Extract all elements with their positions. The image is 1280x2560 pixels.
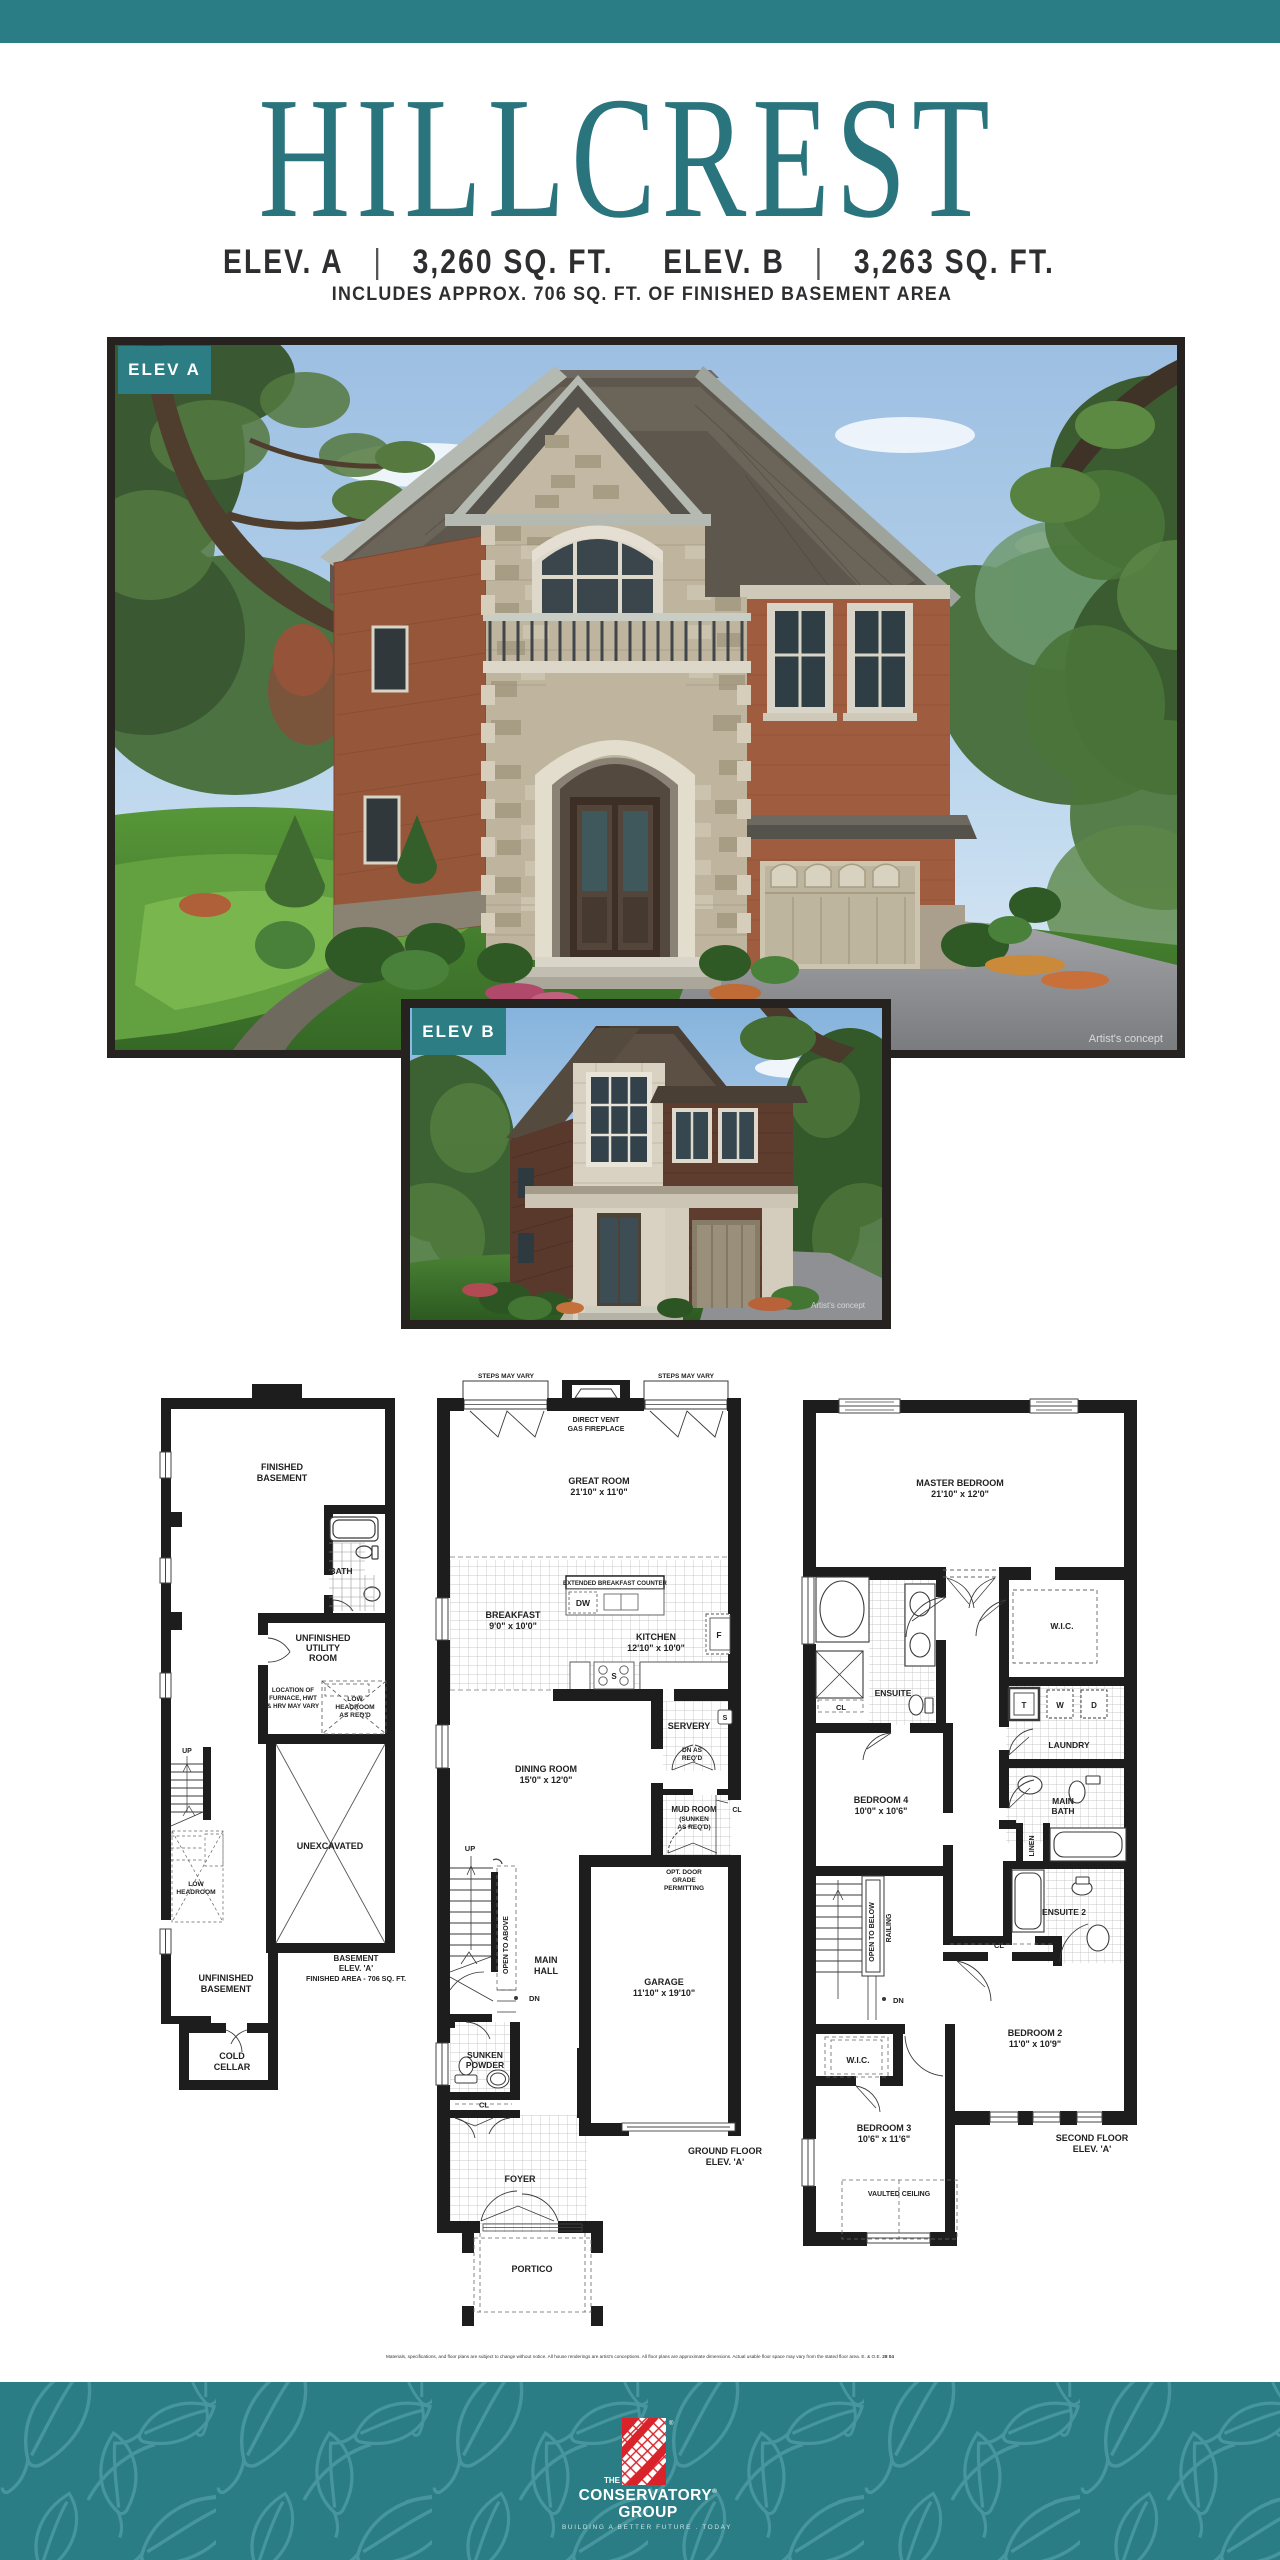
svg-text:MUD ROOM: MUD ROOM <box>671 1805 717 1814</box>
svg-text:POWDER: POWDER <box>466 2060 504 2070</box>
svg-text:UP: UP <box>465 1844 475 1853</box>
svg-text:UNFINISHED: UNFINISHED <box>198 1973 254 1983</box>
svg-text:LINEN: LINEN <box>1029 1836 1036 1857</box>
svg-text:BASEMENT: BASEMENT <box>201 1984 252 1994</box>
svg-text:CL: CL <box>994 1941 1004 1950</box>
svg-text:11'0" x 10'9": 11'0" x 10'9" <box>1009 2039 1061 2049</box>
svg-text:STEPS MAY VARY: STEPS MAY VARY <box>658 1373 715 1380</box>
svg-text:EXTENDED BREAKFAST COUNTER: EXTENDED BREAKFAST COUNTER <box>563 1580 668 1587</box>
svg-text:BATH: BATH <box>1052 1806 1075 1816</box>
svg-text:UP: UP <box>182 1748 192 1755</box>
svg-text:12'10" x 10'0": 12'10" x 10'0" <box>627 1643 685 1653</box>
svg-text:SERVERY: SERVERY <box>668 1721 711 1731</box>
svg-text:MASTER BEDROOM: MASTER BEDROOM <box>916 1478 1004 1488</box>
svg-text:VAULTED CEILING: VAULTED CEILING <box>868 2191 931 2198</box>
svg-text:SUNKEN: SUNKEN <box>467 2050 503 2060</box>
svg-text:OPEN TO BELOW: OPEN TO BELOW <box>869 1902 876 1962</box>
svg-text:UNEXCAVATED: UNEXCAVATED <box>297 1841 364 1851</box>
svg-text:(SUNKEN: (SUNKEN <box>679 1816 709 1823</box>
svg-text:BEDROOM 3: BEDROOM 3 <box>857 2123 912 2133</box>
svg-text:10'6" x 11'6": 10'6" x 11'6" <box>858 2134 910 2144</box>
svg-text:BASEMENT: BASEMENT <box>257 1473 308 1483</box>
svg-text:ENSUITE 2: ENSUITE 2 <box>1042 1907 1086 1917</box>
svg-text:PORTICO: PORTICO <box>511 2264 552 2274</box>
svg-text:BASEMENT: BASEMENT <box>334 1954 379 1963</box>
svg-text:DIRECT VENT: DIRECT VENT <box>573 1417 620 1424</box>
svg-text:LOCATION OF: LOCATION OF <box>272 1687 314 1694</box>
svg-text:GARAGE: GARAGE <box>644 1977 684 1987</box>
svg-text:MAIN: MAIN <box>535 1955 558 1965</box>
svg-text:S: S <box>611 1672 617 1681</box>
svg-text:COLD: COLD <box>219 2051 245 2061</box>
svg-text:®: ® <box>669 2420 674 2427</box>
svg-text:MAIN: MAIN <box>1052 1796 1074 1806</box>
svg-text:CL: CL <box>732 1807 742 1814</box>
svg-text:ELEV. 'A': ELEV. 'A' <box>339 1964 373 1973</box>
svg-text:DINING ROOM: DINING ROOM <box>515 1764 577 1774</box>
svg-text:FURNACE, HWT: FURNACE, HWT <box>269 1695 317 1702</box>
svg-text:D: D <box>1091 1701 1097 1710</box>
svg-text:LOW: LOW <box>188 1881 204 1888</box>
svg-text:T: T <box>1022 1701 1027 1710</box>
svg-text:DN AS: DN AS <box>682 1747 703 1754</box>
svg-text:KITCHEN: KITCHEN <box>636 1632 676 1642</box>
svg-text:BREAKFAST: BREAKFAST <box>485 1610 541 1620</box>
svg-text:FINISHED: FINISHED <box>261 1462 304 1472</box>
svg-text:REQ'D: REQ'D <box>682 1755 703 1762</box>
svg-text:SECOND FLOOR: SECOND FLOOR <box>1056 2133 1129 2143</box>
svg-text:Artist's concept: Artist's concept <box>1089 1033 1163 1045</box>
svg-text:Artist's concept: Artist's concept <box>811 1301 866 1310</box>
svg-text:21'10" x 12'0": 21'10" x 12'0" <box>931 1489 989 1499</box>
svg-text:LAUNDRY: LAUNDRY <box>1048 1740 1090 1750</box>
svg-text:W.I.C.: W.I.C. <box>1050 1621 1073 1631</box>
svg-text:BEDROOM 4: BEDROOM 4 <box>854 1795 909 1805</box>
svg-text:HEADROOM: HEADROOM <box>335 1704 375 1711</box>
svg-text:OPT. DOOR: OPT. DOOR <box>666 1869 702 1876</box>
svg-text:THE: THE <box>604 2476 621 2485</box>
svg-text:11'10" x 19'10": 11'10" x 19'10" <box>633 1988 695 1998</box>
svg-text:DW: DW <box>576 1598 591 1608</box>
svg-text:BEDROOM 2: BEDROOM 2 <box>1008 2028 1063 2038</box>
svg-text:CL: CL <box>479 2101 489 2110</box>
svg-text:FOYER: FOYER <box>504 2174 536 2184</box>
svg-text:HALL: HALL <box>534 1966 558 1976</box>
svg-text:S: S <box>723 1715 728 1722</box>
svg-text:AS REQ'D): AS REQ'D) <box>677 1824 710 1831</box>
svg-text:DN: DN <box>893 1996 904 2005</box>
svg-text:FINISHED AREA - 706 SQ. FT.: FINISHED AREA - 706 SQ. FT. <box>306 1974 406 1983</box>
svg-text:F: F <box>716 1630 721 1640</box>
svg-text:HEADROOM: HEADROOM <box>176 1889 216 1896</box>
svg-text:GREAT ROOM: GREAT ROOM <box>568 1476 629 1486</box>
svg-text:RAILING: RAILING <box>886 1913 893 1942</box>
svg-text:PERMITTING: PERMITTING <box>664 1885 704 1892</box>
svg-text:GRADE: GRADE <box>672 1877 696 1884</box>
svg-text:OPEN TO ABOVE: OPEN TO ABOVE <box>503 1916 510 1974</box>
svg-text:GROUND FLOOR: GROUND FLOOR <box>688 2146 762 2156</box>
svg-text:9'0" x 10'0": 9'0" x 10'0" <box>489 1621 537 1631</box>
svg-text:GAS FIREPLACE: GAS FIREPLACE <box>568 1426 625 1433</box>
svg-text:ROOM: ROOM <box>309 1653 337 1663</box>
svg-text:BATH: BATH <box>330 1566 353 1576</box>
svg-text:CELLAR: CELLAR <box>214 2062 251 2072</box>
svg-text:AS REQ'D: AS REQ'D <box>339 1712 371 1719</box>
svg-text:15'0" x 12'0": 15'0" x 12'0" <box>520 1775 573 1785</box>
svg-text:CL: CL <box>836 1703 846 1712</box>
svg-text:10'0" x 10'6": 10'0" x 10'6" <box>855 1806 908 1816</box>
svg-text:& HRV MAY VARY: & HRV MAY VARY <box>267 1703 320 1710</box>
svg-text:W: W <box>1056 1701 1064 1710</box>
svg-text:STEPS MAY VARY: STEPS MAY VARY <box>478 1373 535 1380</box>
svg-text:ENSUITE: ENSUITE <box>875 1688 912 1698</box>
svg-text:DN: DN <box>529 1994 540 2003</box>
svg-text:ELEV. 'A': ELEV. 'A' <box>1073 2144 1111 2154</box>
svg-text:W.I.C.: W.I.C. <box>846 2055 869 2065</box>
svg-text:UTILITY: UTILITY <box>306 1643 340 1653</box>
svg-text:LOW: LOW <box>347 1696 363 1703</box>
svg-text:UNFINISHED: UNFINISHED <box>295 1633 351 1643</box>
svg-text:ELEV. 'A': ELEV. 'A' <box>706 2157 744 2167</box>
svg-text:21'10" x 11'0": 21'10" x 11'0" <box>570 1487 627 1497</box>
